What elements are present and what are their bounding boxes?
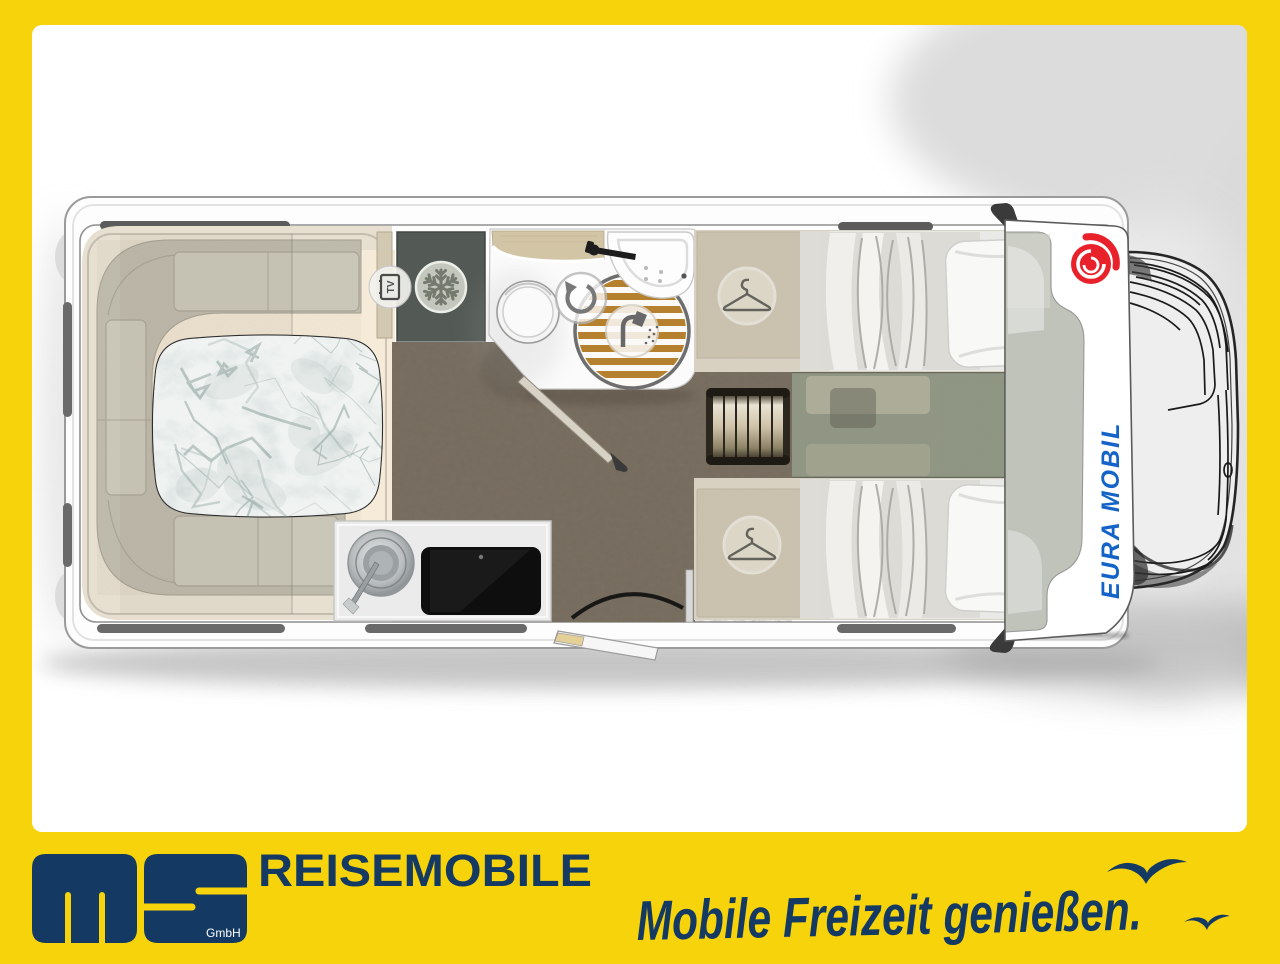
svg-text:Mobile Freizeit genießen.: Mobile Freizeit genießen. (636, 878, 1142, 952)
svg-text:TV: TV (386, 280, 397, 293)
svg-text:EURA MOBIL: EURA MOBIL (1097, 422, 1125, 599)
svg-text:REISEMOBILE: REISEMOBILE (258, 845, 592, 896)
svg-text:GmbH: GmbH (206, 926, 241, 940)
